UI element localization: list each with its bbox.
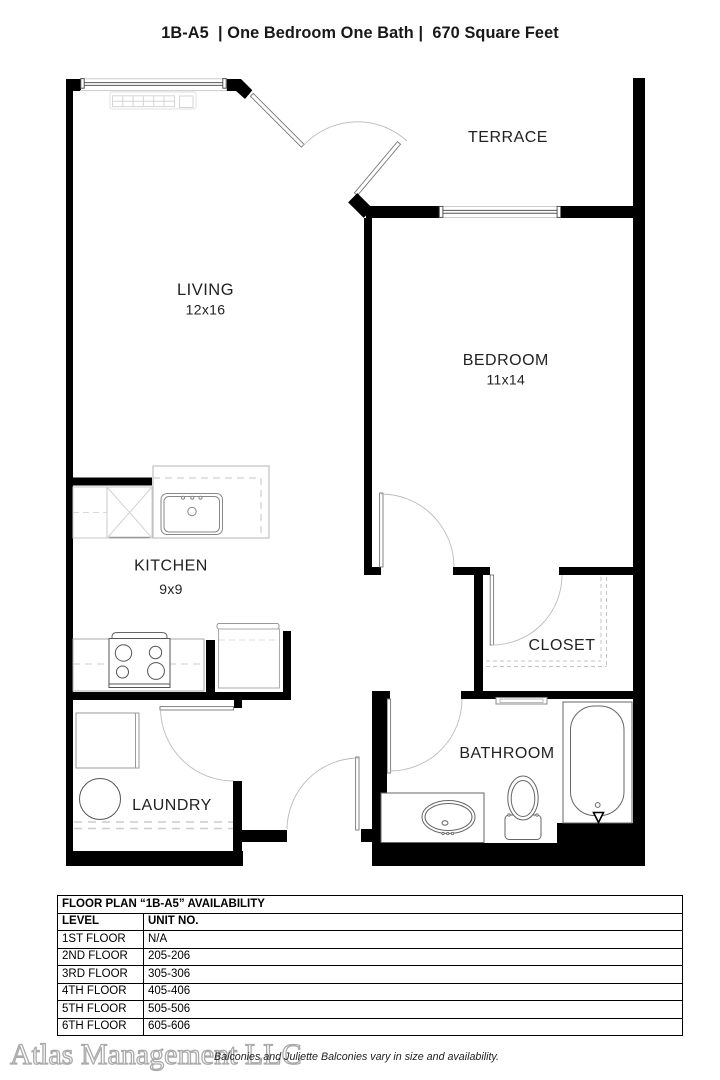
- svg-text:9x9: 9x9: [159, 581, 182, 597]
- svg-text:LIVING: LIVING: [177, 281, 234, 299]
- svg-text:LAUNDRY: LAUNDRY: [132, 797, 212, 814]
- svg-text:CLOSET: CLOSET: [528, 637, 595, 654]
- svg-text:KITCHEN: KITCHEN: [134, 558, 208, 575]
- svg-text:BATHROOM: BATHROOM: [459, 745, 554, 762]
- svg-text:BEDROOM: BEDROOM: [463, 352, 549, 369]
- svg-text:11x14: 11x14: [486, 372, 525, 388]
- svg-text:TERRACE: TERRACE: [468, 129, 548, 146]
- svg-text:12x16: 12x16: [186, 302, 226, 318]
